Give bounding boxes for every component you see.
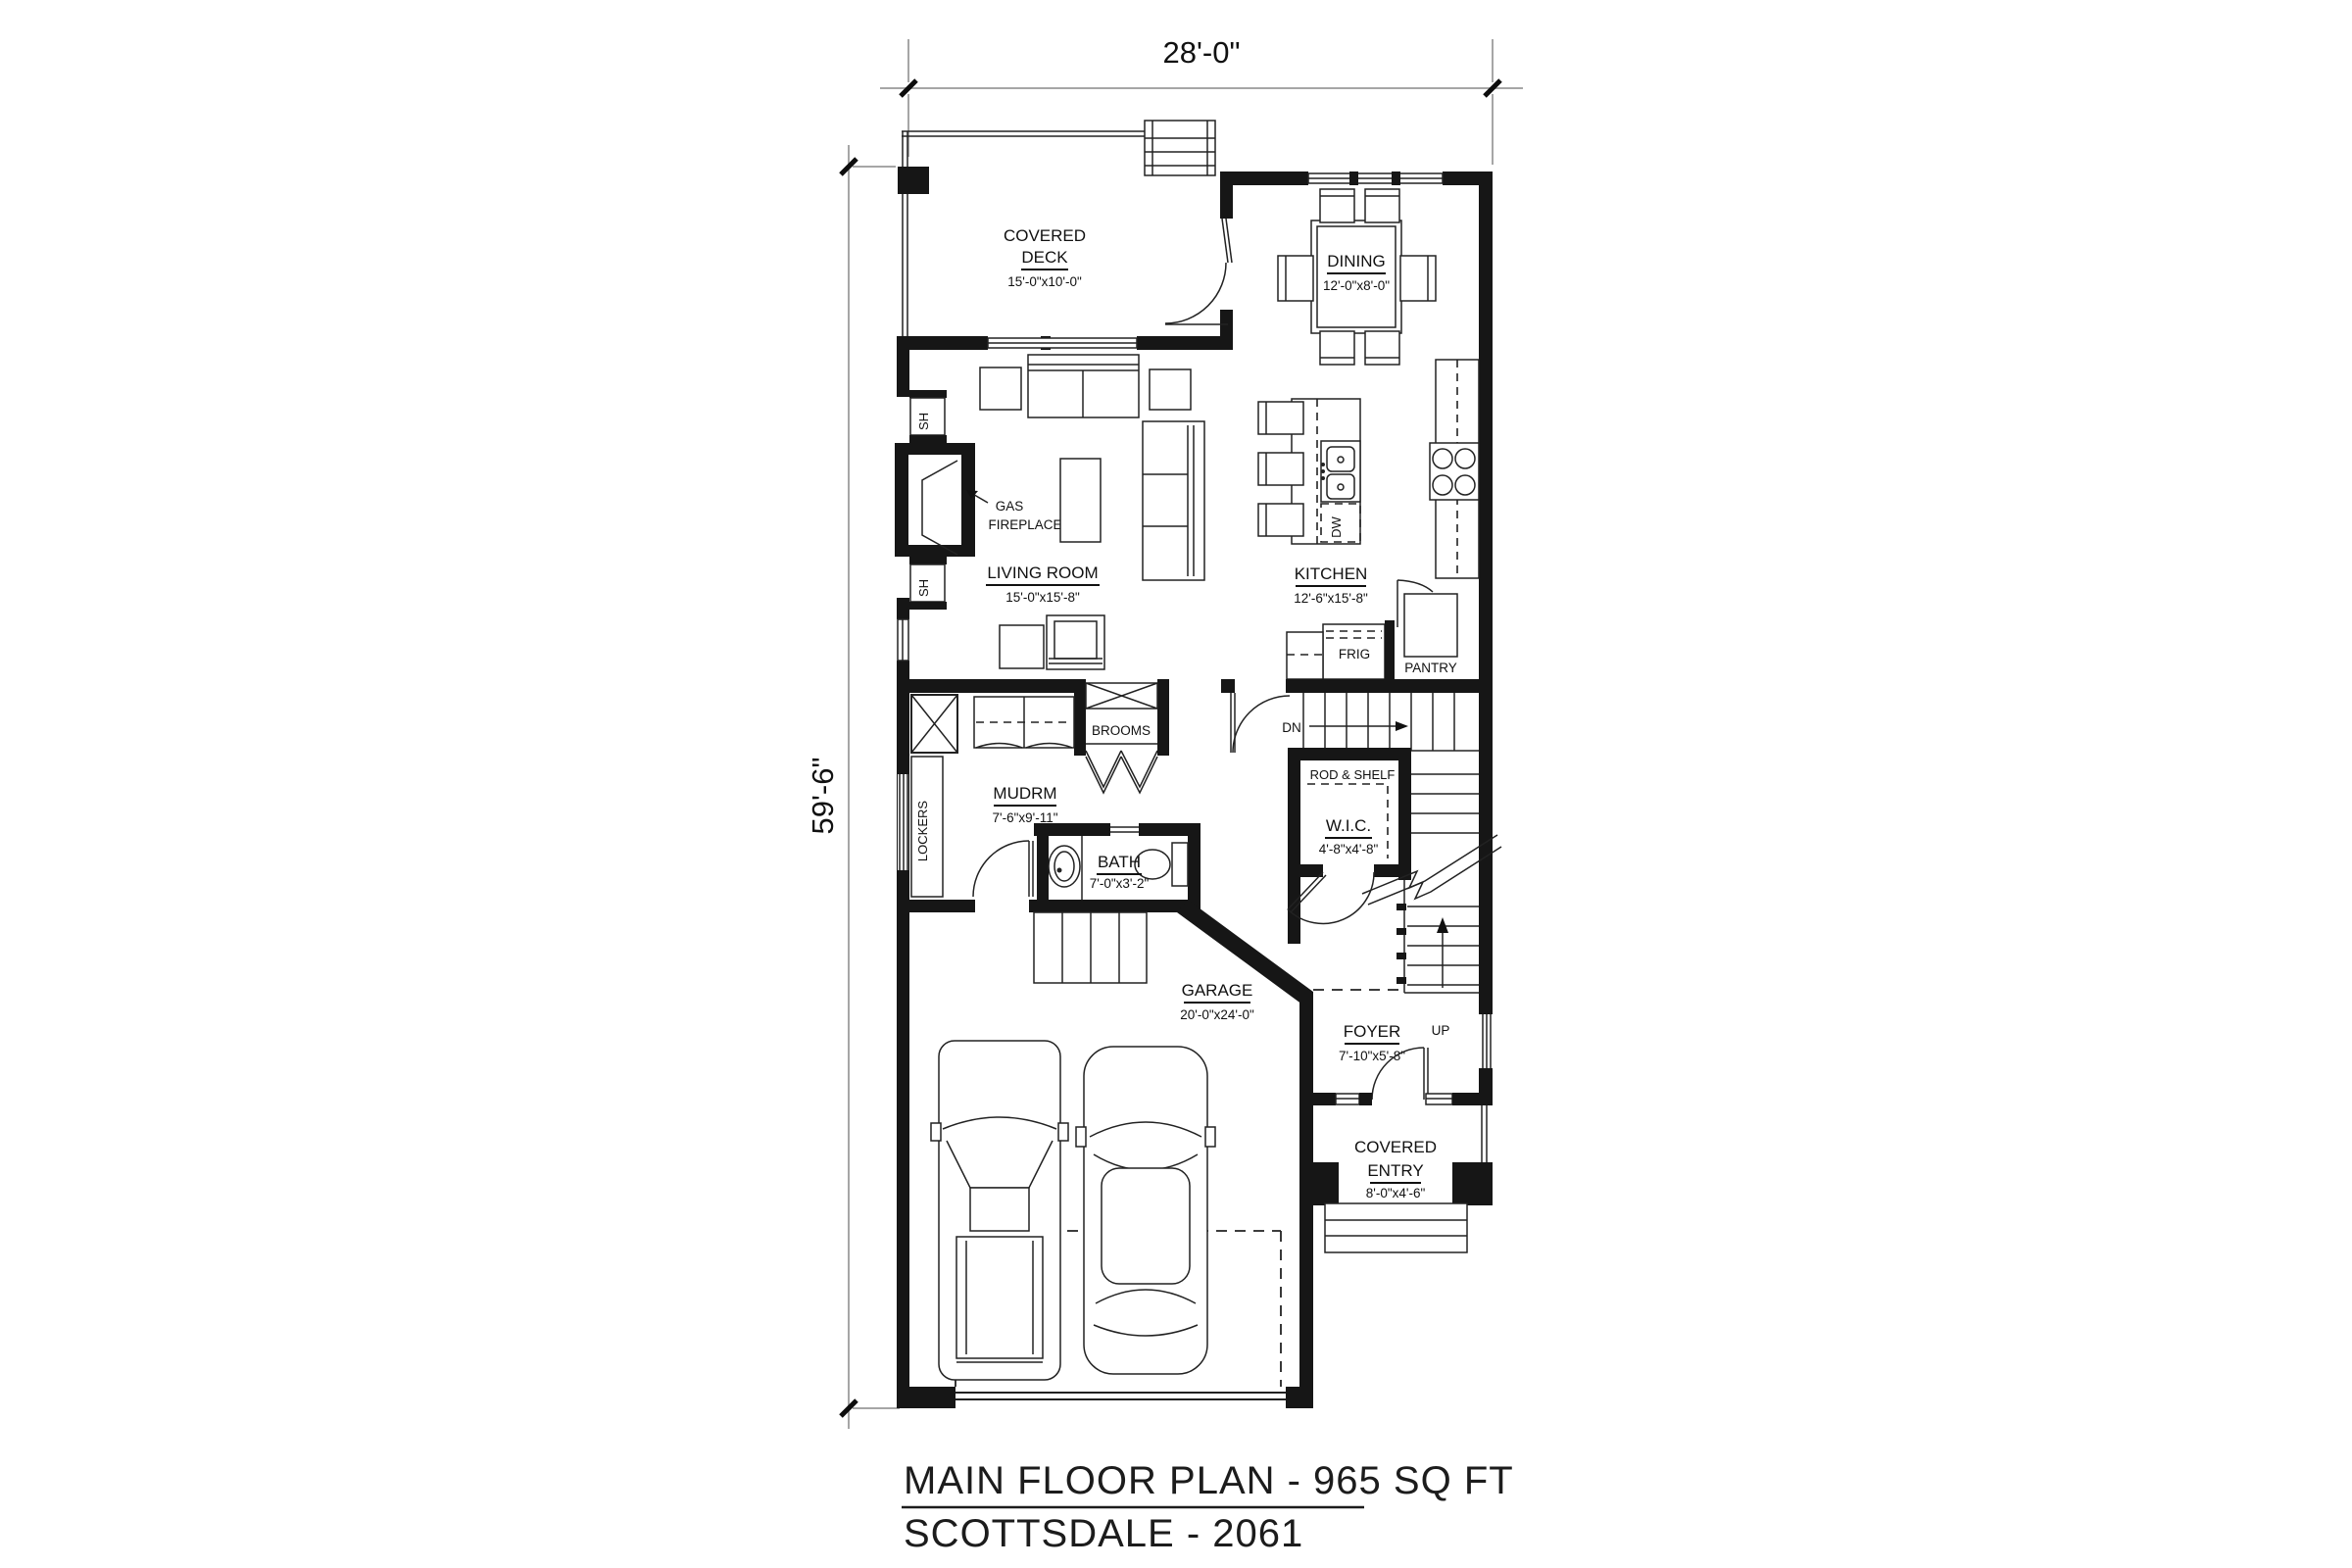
stool [1258,504,1303,536]
kitchen-counter-right [1430,360,1479,578]
entry-label-line2: ENTRY [1367,1161,1423,1180]
deck-door [1165,219,1232,324]
dining-room: DINING 12'-0"x8'-0" [1278,189,1436,365]
dimension-left: 59'-6" [806,145,900,1429]
garage-dims: 20'-0"x24'-0" [1180,1007,1254,1022]
stairs-down: DN [1282,693,1479,751]
dining-dims: 12'-0"x8'-0" [1323,278,1390,293]
truck [931,1041,1068,1380]
deck-label-line1: COVERED [1004,226,1086,245]
stairs-up-label: UP [1432,1023,1450,1038]
rod-shelf-label: ROD & SHELF [1310,767,1396,782]
kitchen-label: KITCHEN [1295,564,1368,583]
gas-fireplace-label-line1: GAS [996,499,1024,514]
wic-label: W.I.C. [1326,816,1371,835]
shelf-top-label: SH [916,413,931,430]
mudroom-dims: 7'-6"x9'-11" [992,810,1057,825]
gas-fireplace-label-line2: FIREPLACE [988,517,1061,532]
fridge-label: FRIG [1339,647,1370,661]
mudroom-closet [911,695,957,753]
kitchen-counter-small [1287,632,1323,679]
kitchen: DW KITCHEN 12'-6"x15'-8" FRIG [1258,360,1479,679]
dining-label: DINING [1327,252,1386,270]
front-sidelite-right [1426,1094,1452,1104]
pantry-label: PANTRY [1404,661,1457,675]
dishwasher-label: DW [1329,515,1344,537]
foyer-label: FOYER [1344,1022,1401,1041]
wic-door [1288,872,1374,923]
front-sidelite-left [1336,1094,1359,1104]
lockers-label: LOCKERS [915,801,930,861]
hall-door [1231,693,1290,753]
bath-dims: 7'-0"x3'-2" [1090,876,1150,891]
mudroom-label: MUDRM [993,784,1056,803]
living-room-window-left [898,619,908,661]
mudroom-bench [974,697,1074,748]
bath-sink [1049,836,1082,900]
living-room-label: LIVING ROOM [987,563,1098,582]
covered-deck: COVERED DECK 15'-0"x10'-0" [898,121,1233,336]
stairs-and-wic: DN ROD & SHELF W.I.C. 4'-8"x4'-8" [1221,679,1501,1038]
entry-dims: 8'-0"x4'-6" [1366,1186,1426,1200]
kitchen-dims: 12'-6"x15'-8" [1294,591,1368,606]
title-block: MAIN FLOOR PLAN - 965 SQ FT SCOTTSDALE -… [902,1459,1514,1555]
brooms-closet: BROOMS [1086,683,1157,793]
bathroom: BATH 7'-0"x3'-2" [1034,823,1200,912]
lockers: LOCKERS [911,757,943,897]
living-room-dims: 15'-0"x15'-8" [1005,590,1080,605]
stairs-down-label: DN [1282,720,1301,735]
covered-entry: COVERED ENTRY 8'-0"x4'-6" [1301,1105,1493,1252]
bath-label: BATH [1098,853,1141,871]
fridge: FRIG [1323,624,1385,679]
deck-post [898,167,929,194]
car [1076,1047,1215,1374]
dimension-height-label: 59'-6" [806,758,840,835]
living-room: SH SH GAS FIREPLACE LIVING ROO [895,355,1204,669]
plan-title: MAIN FLOOR PLAN - 965 SQ FT [904,1459,1514,1502]
deck-label-line2: DECK [1021,248,1068,267]
kitchen-island: DW [1258,399,1360,544]
stool [1258,402,1303,434]
stool [1258,453,1303,485]
garage: GARAGE 20'-0"x24'-0" [931,900,1313,1408]
wic-dims: 4'-8"x4'-8" [1319,842,1379,857]
brooms-label: BROOMS [1092,723,1151,738]
mudroom-garage-door [973,841,1033,897]
entry-label-line1: COVERED [1354,1138,1437,1156]
garage-label: GARAGE [1182,981,1253,1000]
deck-dims: 15'-0"x10'-0" [1007,274,1082,289]
entry-column [1452,1162,1493,1205]
plan-subtitle: SCOTTSDALE - 2061 [904,1512,1303,1555]
foyer-window-right [1480,1014,1492,1068]
entry-steps [1325,1203,1467,1252]
brooms-bifold-door [1086,751,1157,787]
garage-door [955,1393,1286,1399]
dimension-width-label: 28'-0" [1163,35,1241,70]
deck-stairs [1145,121,1215,175]
floor-plan-page: 28'-0" 59'-6" COVERED [0,0,2352,1568]
mudroom-window-left [898,774,908,870]
garage-steps [1034,912,1147,983]
floor-plan-drawing: 28'-0" 59'-6" COVERED [0,0,2352,1568]
dining-table [1278,189,1436,365]
shelf-bottom-label: SH [916,579,931,597]
wic: ROD & SHELF W.I.C. 4'-8"x4'-8" [1288,748,1411,944]
foyer: FOYER 7'-10"x5'-8" [1301,990,1493,1105]
pantry: PANTRY [1385,580,1457,679]
